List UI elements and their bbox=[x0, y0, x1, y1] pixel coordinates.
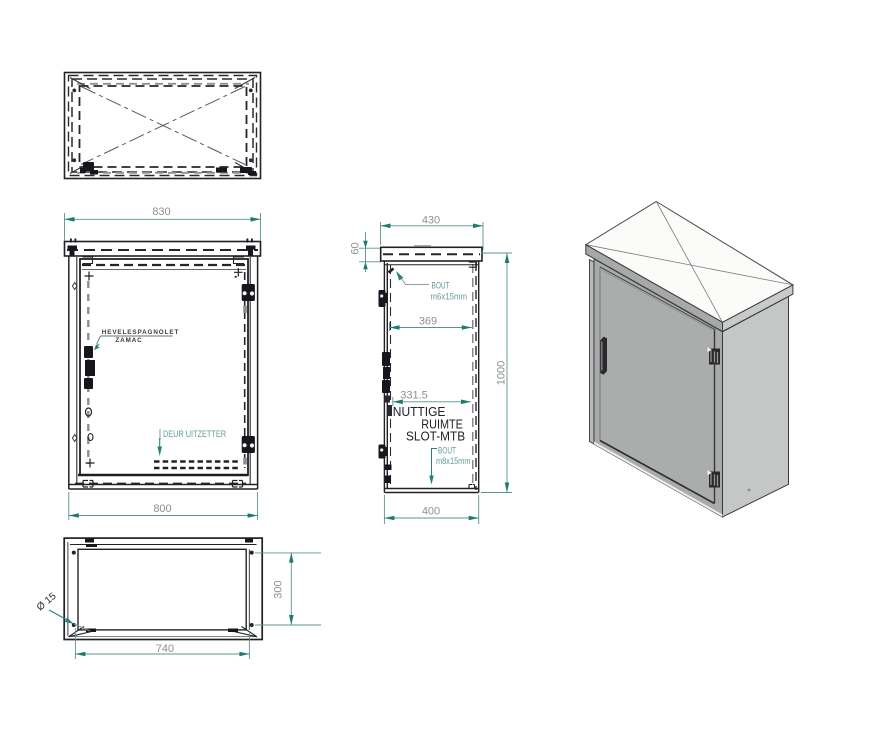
svg-text:BOUT: BOUT bbox=[432, 281, 450, 292]
svg-text:300: 300 bbox=[273, 580, 285, 598]
svg-text:740: 740 bbox=[156, 643, 174, 655]
svg-text:331.5: 331.5 bbox=[400, 390, 428, 402]
svg-text:830: 830 bbox=[152, 206, 170, 218]
svg-text:ZAMAC: ZAMAC bbox=[115, 337, 142, 344]
svg-text:m6x15mm: m6x15mm bbox=[431, 292, 468, 303]
svg-text:400: 400 bbox=[422, 506, 440, 518]
svg-text:SLOT-MTB: SLOT-MTB bbox=[406, 429, 465, 444]
svg-text:HEVELESPAGNOLET: HEVELESPAGNOLET bbox=[102, 329, 179, 336]
svg-text:800: 800 bbox=[153, 503, 171, 515]
svg-text:m8x15mm: m8x15mm bbox=[436, 456, 471, 467]
svg-text:60: 60 bbox=[350, 242, 362, 254]
svg-text:369: 369 bbox=[419, 316, 437, 328]
svg-text:DEUR UITZETTER: DEUR UITZETTER bbox=[163, 429, 226, 440]
svg-text:BOUT: BOUT bbox=[438, 446, 456, 457]
svg-text:430: 430 bbox=[422, 214, 440, 226]
svg-text:1000: 1000 bbox=[496, 361, 508, 385]
